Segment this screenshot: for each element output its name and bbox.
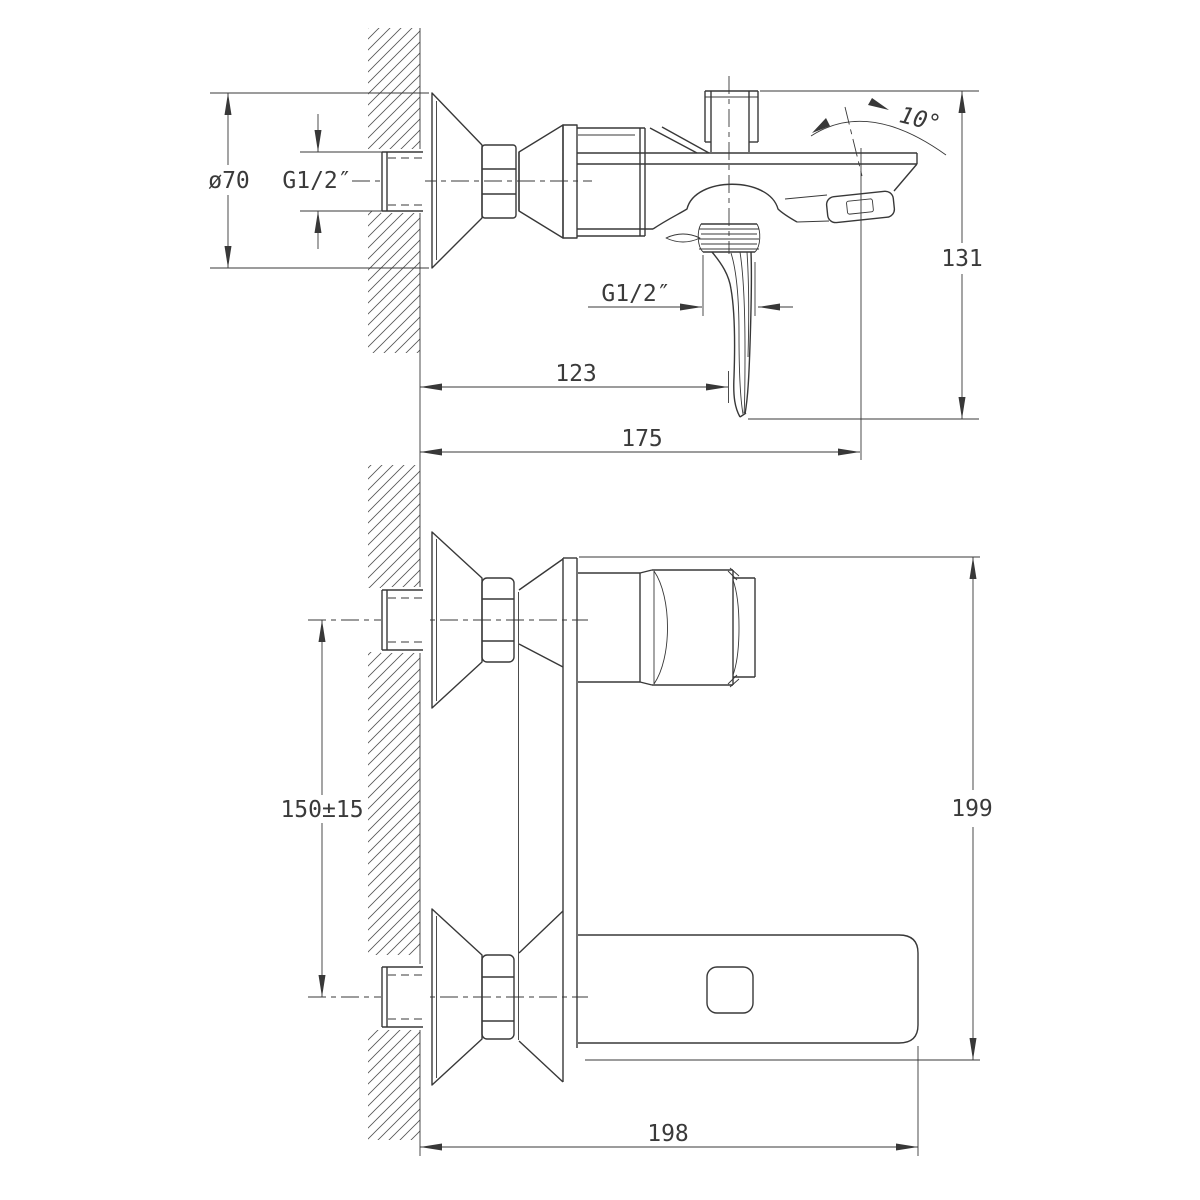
dimension-height-131: 131 [748,91,983,419]
dim-flange-diameter-label: ø70 [208,168,250,194]
dimension-shower-thread: G1/2″ [588,255,793,316]
dim-spacing-150-label: 150±15 [280,797,363,823]
shower-outlet-side [705,91,758,152]
faucet-body-front [519,558,578,1082]
eccentric-union-side [432,93,577,268]
faucet-body-side [577,127,829,242]
dimension-length-198: 198 [420,1046,918,1156]
spout-front [578,935,918,1043]
wall-hatch-bottom-2 [368,652,420,955]
inlet-nipple-side [381,149,425,213]
dimension-height-199: 199 [579,557,993,1060]
dimension-spacing-150: 150±15 [280,620,363,997]
wall-hatch-bottom-1 [368,465,420,588]
dimension-length-123: 123 [420,361,729,403]
technical-drawing-svg: ø70 G1/2″ 10° 131 [0,0,1200,1200]
dim-angle-label: 10° [897,102,944,137]
dimension-spout-angle: 10° [811,98,946,155]
wall-hatch-top-2 [368,211,420,353]
spout-opening [707,967,753,1013]
dim-height-131-label: 131 [941,246,983,272]
dimension-length-175: 175 [420,426,860,452]
dim-123-label: 123 [555,361,597,387]
dim-shower-thread-label: G1/2″ [601,281,670,307]
wall-hatch-top-1 [368,28,420,149]
side-view: ø70 G1/2″ 10° 131 [208,76,983,460]
wall-hatch-bottom-3 [368,1030,420,1140]
drawing-canvas: ø70 G1/2″ 10° 131 [0,0,1200,1200]
lever-handle-side [712,252,751,417]
inlet-nipple-front-upper [381,587,425,653]
aerator-side [826,191,895,224]
dim-175-label: 175 [621,426,663,452]
dim-inlet-thread-label: G1/2″ [282,168,351,194]
inlet-nipple-front-lower [381,964,425,1030]
dim-height-199-label: 199 [951,796,993,822]
handle-front [578,568,755,687]
dim-length-198-label: 198 [647,1121,689,1147]
